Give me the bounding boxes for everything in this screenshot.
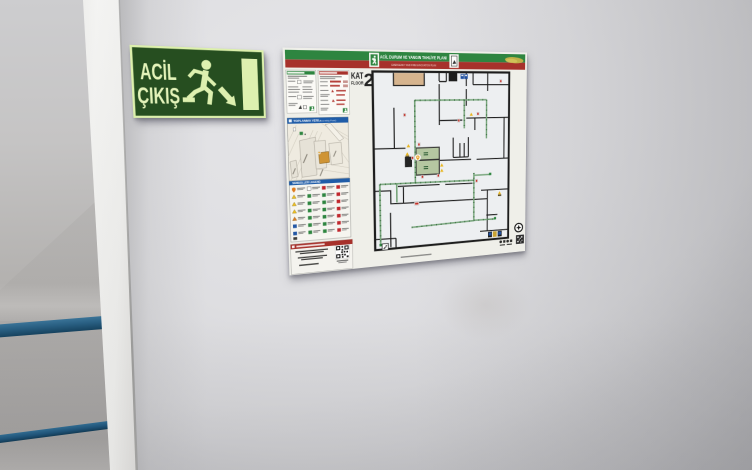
svg-text:(Assembly Point): (Assembly Point) (319, 119, 336, 123)
svg-text:ACİL: ACİL (139, 59, 177, 86)
svg-text:KAT: KAT (351, 72, 364, 81)
svg-text:ACİL DURUM VE YANGIN TAHLİYE P: ACİL DURUM VE YANGIN TAHLİYE PLANI (380, 54, 447, 61)
svg-text:EMERGENCY AND FIRE EVACUATION: EMERGENCY AND FIRE EVACUATION PLAN (391, 63, 436, 67)
svg-text:TOPLANMA YERİ: TOPLANMA YERİ (293, 118, 319, 123)
svg-text:FLOOR: FLOOR (351, 81, 364, 86)
svg-text:ÇIKIŞ: ÇIKIŞ (137, 83, 181, 109)
